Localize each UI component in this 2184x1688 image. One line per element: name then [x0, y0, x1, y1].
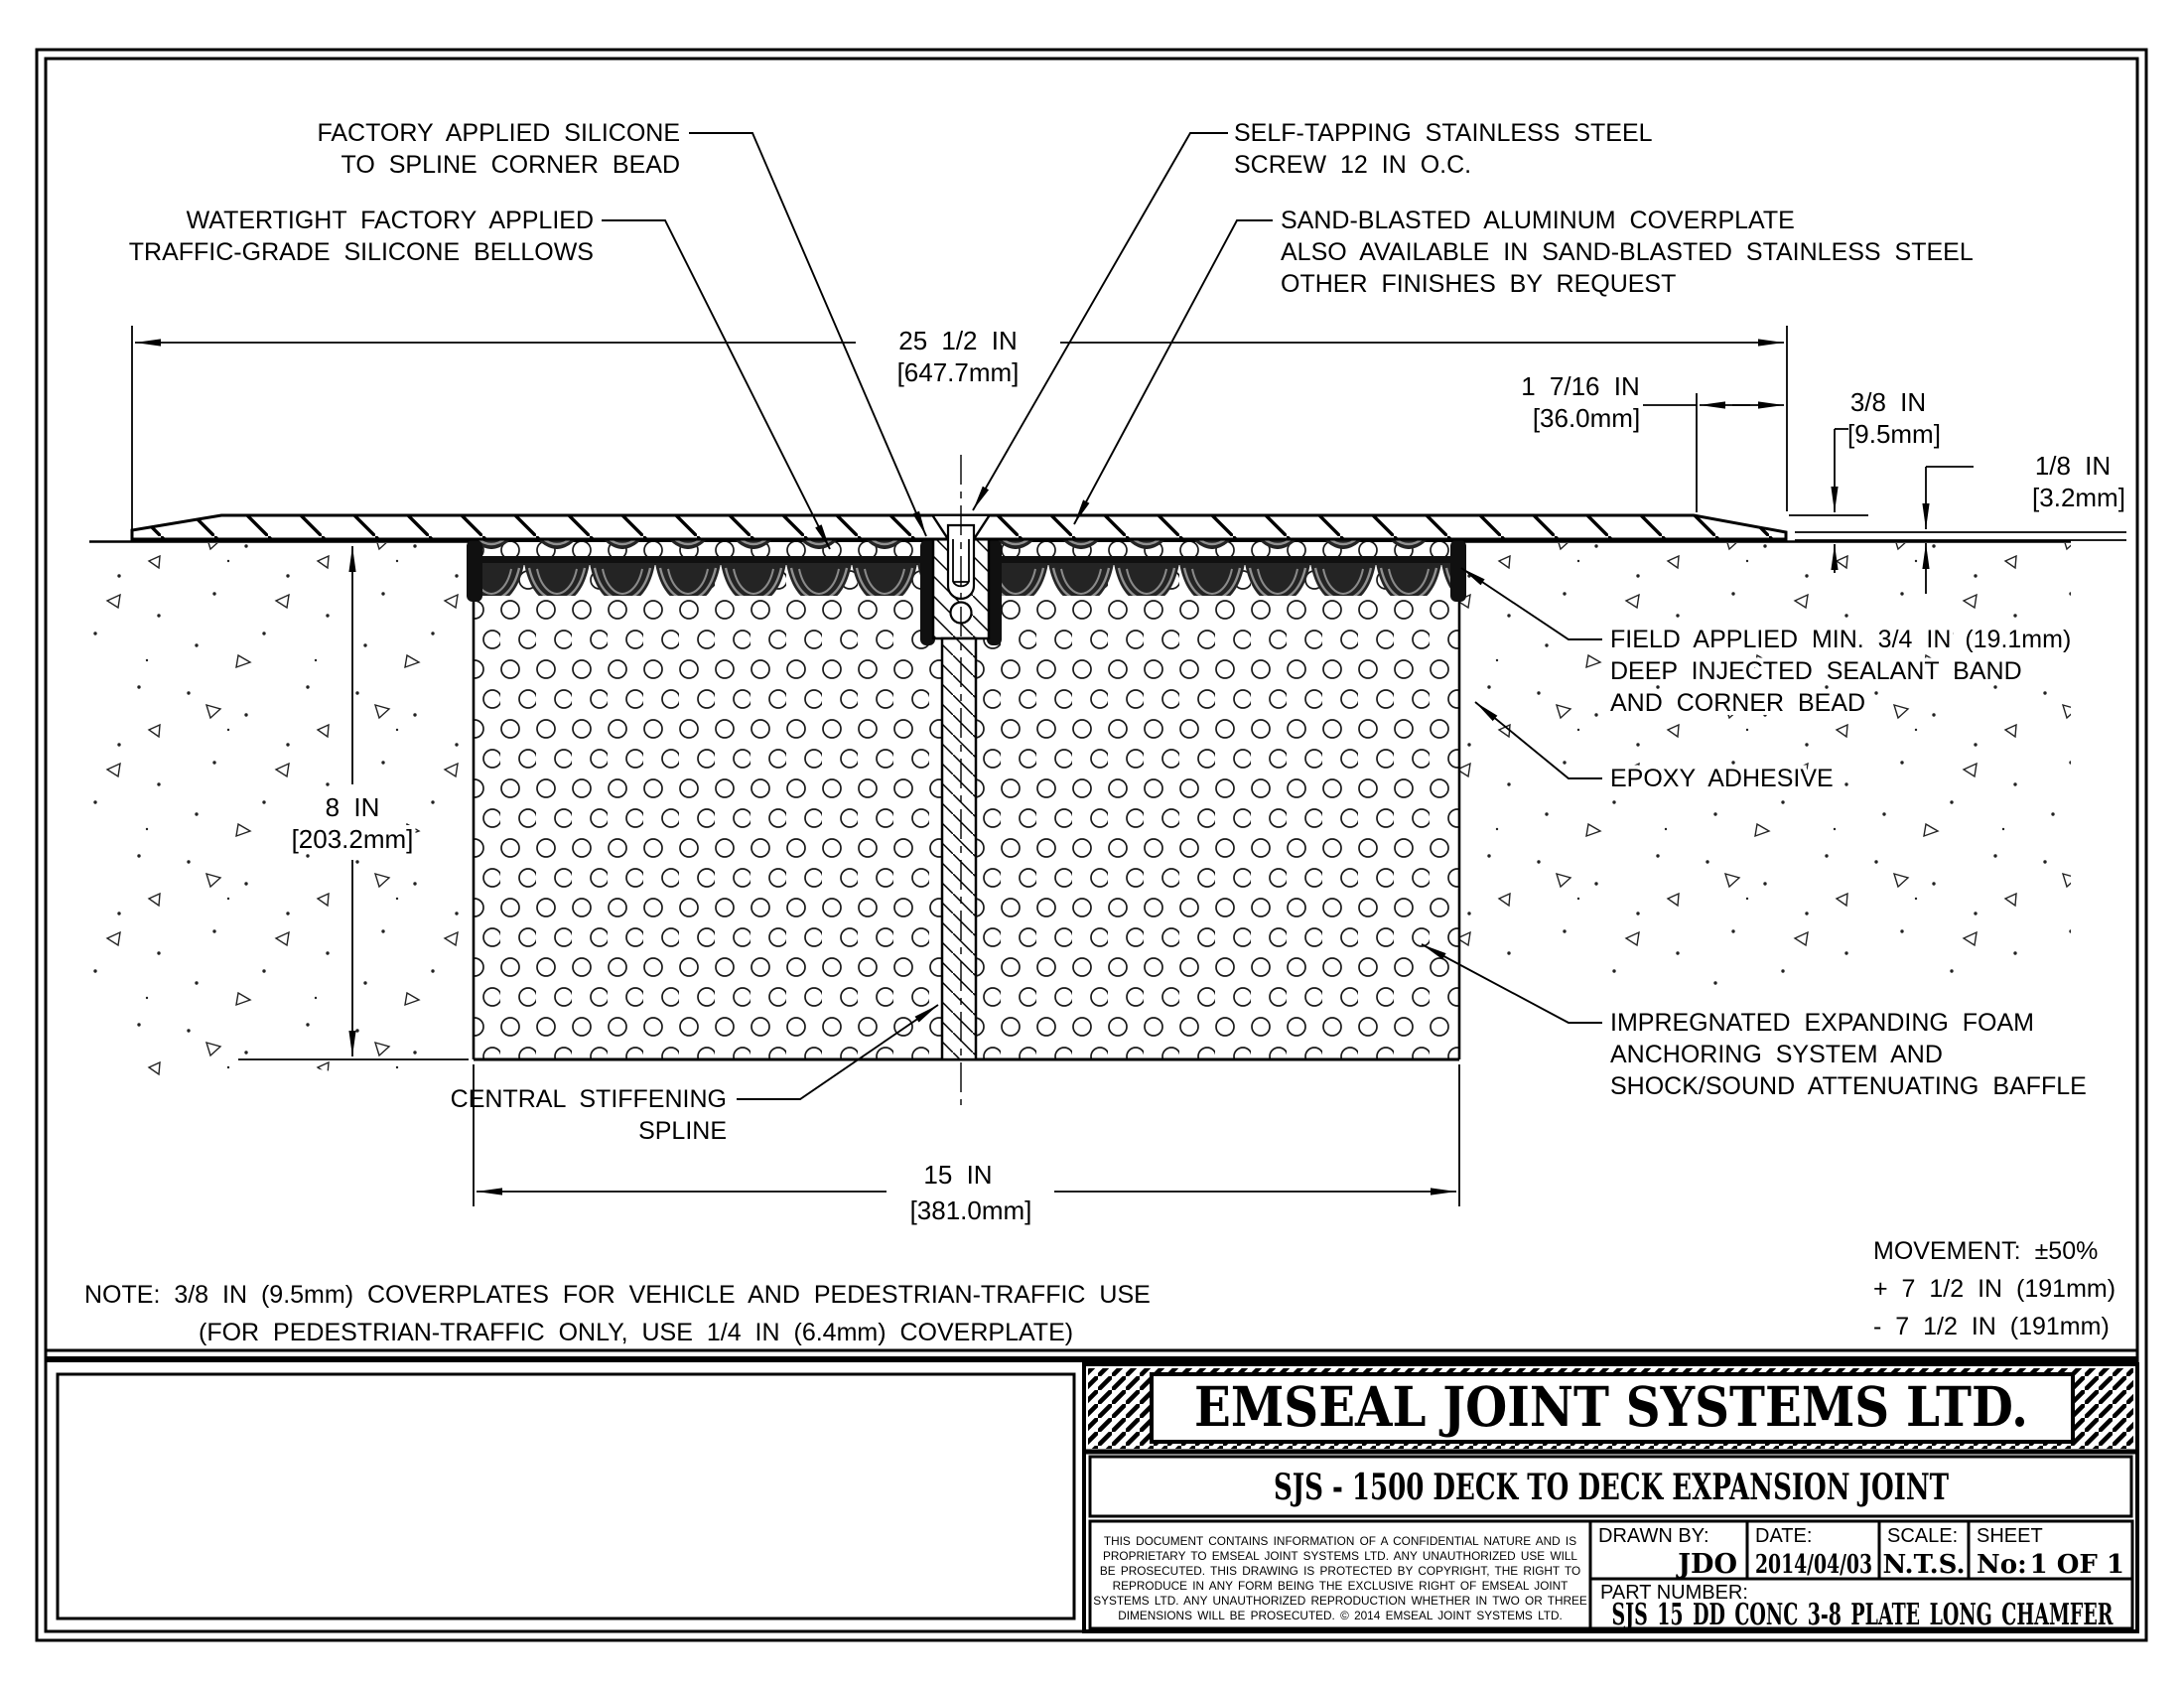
date-label: DATE:: [1755, 1525, 1812, 1547]
scale-value: N.T.S.: [1882, 1550, 1965, 1580]
dim-overall-width-mm: [647.7mm]: [897, 357, 1020, 387]
sheet-label: SHEET: [1977, 1525, 2043, 1547]
dim-edge-mm: [3.2mm]: [2032, 483, 2125, 512]
dim-chamfer-length: 1 7/16 IN [36.0mm]: [1521, 371, 1784, 512]
label-bellows-2: TRAFFIC-GRADE SILICONE BELLOWS: [129, 238, 594, 266]
dim-edge-in: 1/8 IN: [2035, 451, 2111, 481]
label-coverplate-2: ALSO AVAILABLE IN SAND-BLASTED STAINLESS…: [1281, 238, 1974, 266]
dim-plate-mm: [9.5mm]: [1847, 419, 1941, 449]
titleblock-separator: [46, 1350, 2137, 1359]
label-sealant-2: DEEP INJECTED SEALANT BAND: [1610, 657, 2022, 685]
drawing-title: SJS - 1500 DECK TO DECK EXPANSION JOINT: [1274, 1467, 1949, 1508]
corner-bead-left: [467, 540, 482, 602]
company-banner: EMSEAL JOINT SYSTEMS LTD.: [1088, 1368, 2133, 1449]
label-sealant-3: AND CORNER BEAD: [1610, 689, 1865, 717]
note-block: NOTE: 3/8 IN (9.5mm) COVERPLATES FOR VEH…: [84, 1281, 1151, 1346]
label-foam-2: ANCHORING SYSTEM AND: [1610, 1041, 1943, 1068]
drawn-by-value: JDO: [1676, 1549, 1737, 1580]
label-factory-silicone-2: TO SPLINE CORNER BEAD: [341, 151, 680, 179]
part-number-value: SJS_15_DD_CONC_3-8_PLATE_LONG_CHAMFER: [1612, 1598, 2115, 1632]
dim-depth-mm: [203.2mm]: [292, 824, 414, 854]
dim-plate-in: 3/8 IN: [1850, 387, 1926, 417]
label-spline-1: CENTRAL STIFFENING: [451, 1085, 727, 1113]
sheet-value: 1 OF 1: [2030, 1550, 2124, 1580]
corner-bead-right: [1450, 540, 1466, 602]
label-coverplate-3: OTHER FINISHES BY REQUEST: [1281, 270, 1676, 298]
disclaimer-line-2: PROPRIETARY TO EMSEAL JOINT SYSTEMS LTD.…: [1103, 1549, 1577, 1563]
dim-depth-in: 8 IN: [326, 792, 380, 822]
disclaimer-box: THIS DOCUMENT CONTAINS INFORMATION OF A …: [1090, 1521, 1590, 1628]
note-line-1: NOTE: 3/8 IN (9.5mm) COVERPLATES FOR VEH…: [84, 1281, 1151, 1309]
movement-line-2: + 7 1/2 IN (191mm): [1873, 1275, 2116, 1303]
company-name: EMSEAL JOINT SYSTEMS LTD.: [1194, 1374, 2028, 1439]
fields-row: DRAWN BY: JDO DATE: 2014/04/03 SCALE: N.…: [1590, 1521, 2132, 1580]
label-spline-2: SPLINE: [638, 1117, 727, 1145]
label-epoxy: EPOXY ADHESIVE: [1610, 765, 1834, 792]
drawing-title-row: SJS - 1500 DECK TO DECK EXPANSION JOINT: [1090, 1457, 2131, 1516]
note-line-2: (FOR PEDESTRIAN-TRAFFIC ONLY, USE 1/4 IN…: [199, 1319, 1073, 1346]
drawn-by-label: DRAWN BY:: [1598, 1525, 1709, 1547]
disclaimer-line-1: THIS DOCUMENT CONTAINS INFORMATION OF A …: [1104, 1534, 1576, 1548]
dim-overall-width-in: 25 1/2 IN: [898, 326, 1018, 355]
sheet-no-label: No:: [1977, 1550, 2027, 1580]
part-number-row: PART NUMBER: SJS_15_DD_CONC_3-8_PLATE_LO…: [1590, 1579, 2132, 1632]
revision-box: [58, 1374, 1074, 1618]
label-screw-1: SELF-TAPPING STAINLESS STEEL: [1234, 119, 1653, 147]
dim-chamfer-mm: [36.0mm]: [1533, 403, 1640, 433]
dim-joint-mm: [381.0mm]: [910, 1196, 1032, 1225]
scale-label: SCALE:: [1887, 1525, 1958, 1547]
movement-line-1: MOVEMENT: ±50%: [1873, 1237, 2098, 1265]
label-bellows-1: WATERTIGHT FACTORY APPLIED: [187, 207, 594, 234]
label-screw-2: SCREW 12 IN O.C.: [1234, 151, 1471, 179]
disclaimer-line-6: DIMENSIONS WILL BE PROSECUTED. © 2014 EM…: [1118, 1609, 1563, 1622]
disclaimer-line-4: REPRODUCE IN ANY FORM BEING THE EXCLUSIV…: [1113, 1579, 1569, 1593]
label-sealant-1: FIELD APPLIED MIN. 3/4 IN (19.1mm): [1610, 626, 2071, 653]
title-block: EMSEAL JOINT SYSTEMS LTD. SJS - 1500 DEC…: [1084, 1364, 2137, 1632]
dim-chamfer-in: 1 7/16 IN: [1521, 371, 1640, 401]
label-coverplate-1: SAND-BLASTED ALUMINUM COVERPLATE: [1281, 207, 1795, 234]
concrete-deck-left: [89, 543, 474, 1086]
movement-line-3: - 7 1/2 IN (191mm): [1873, 1313, 2110, 1340]
label-factory-silicone-1: FACTORY APPLIED SILICONE: [317, 119, 680, 147]
disclaimer-line-5: SYSTEMS LTD. ANY UNAUTHORIZED REPRODUCTI…: [1093, 1594, 1587, 1608]
movement-block: MOVEMENT: ±50% + 7 1/2 IN (191mm) - 7 1/…: [1873, 1237, 2116, 1340]
drawing-sheet: 25 1/2 IN [647.7mm] 1 7/16 IN [36.0mm] 3…: [0, 0, 2184, 1688]
label-foam-1: IMPREGNATED EXPANDING FOAM: [1610, 1009, 2034, 1037]
date-value: 2014/04/03: [1755, 1550, 1872, 1580]
label-foam-3: SHOCK/SOUND ATTENUATING BAFFLE: [1610, 1072, 2087, 1100]
disclaimer-line-3: BE PROSECUTED. THIS DRAWING IS PROTECTED…: [1100, 1564, 1580, 1578]
dim-joint-in: 15 IN: [923, 1160, 992, 1190]
